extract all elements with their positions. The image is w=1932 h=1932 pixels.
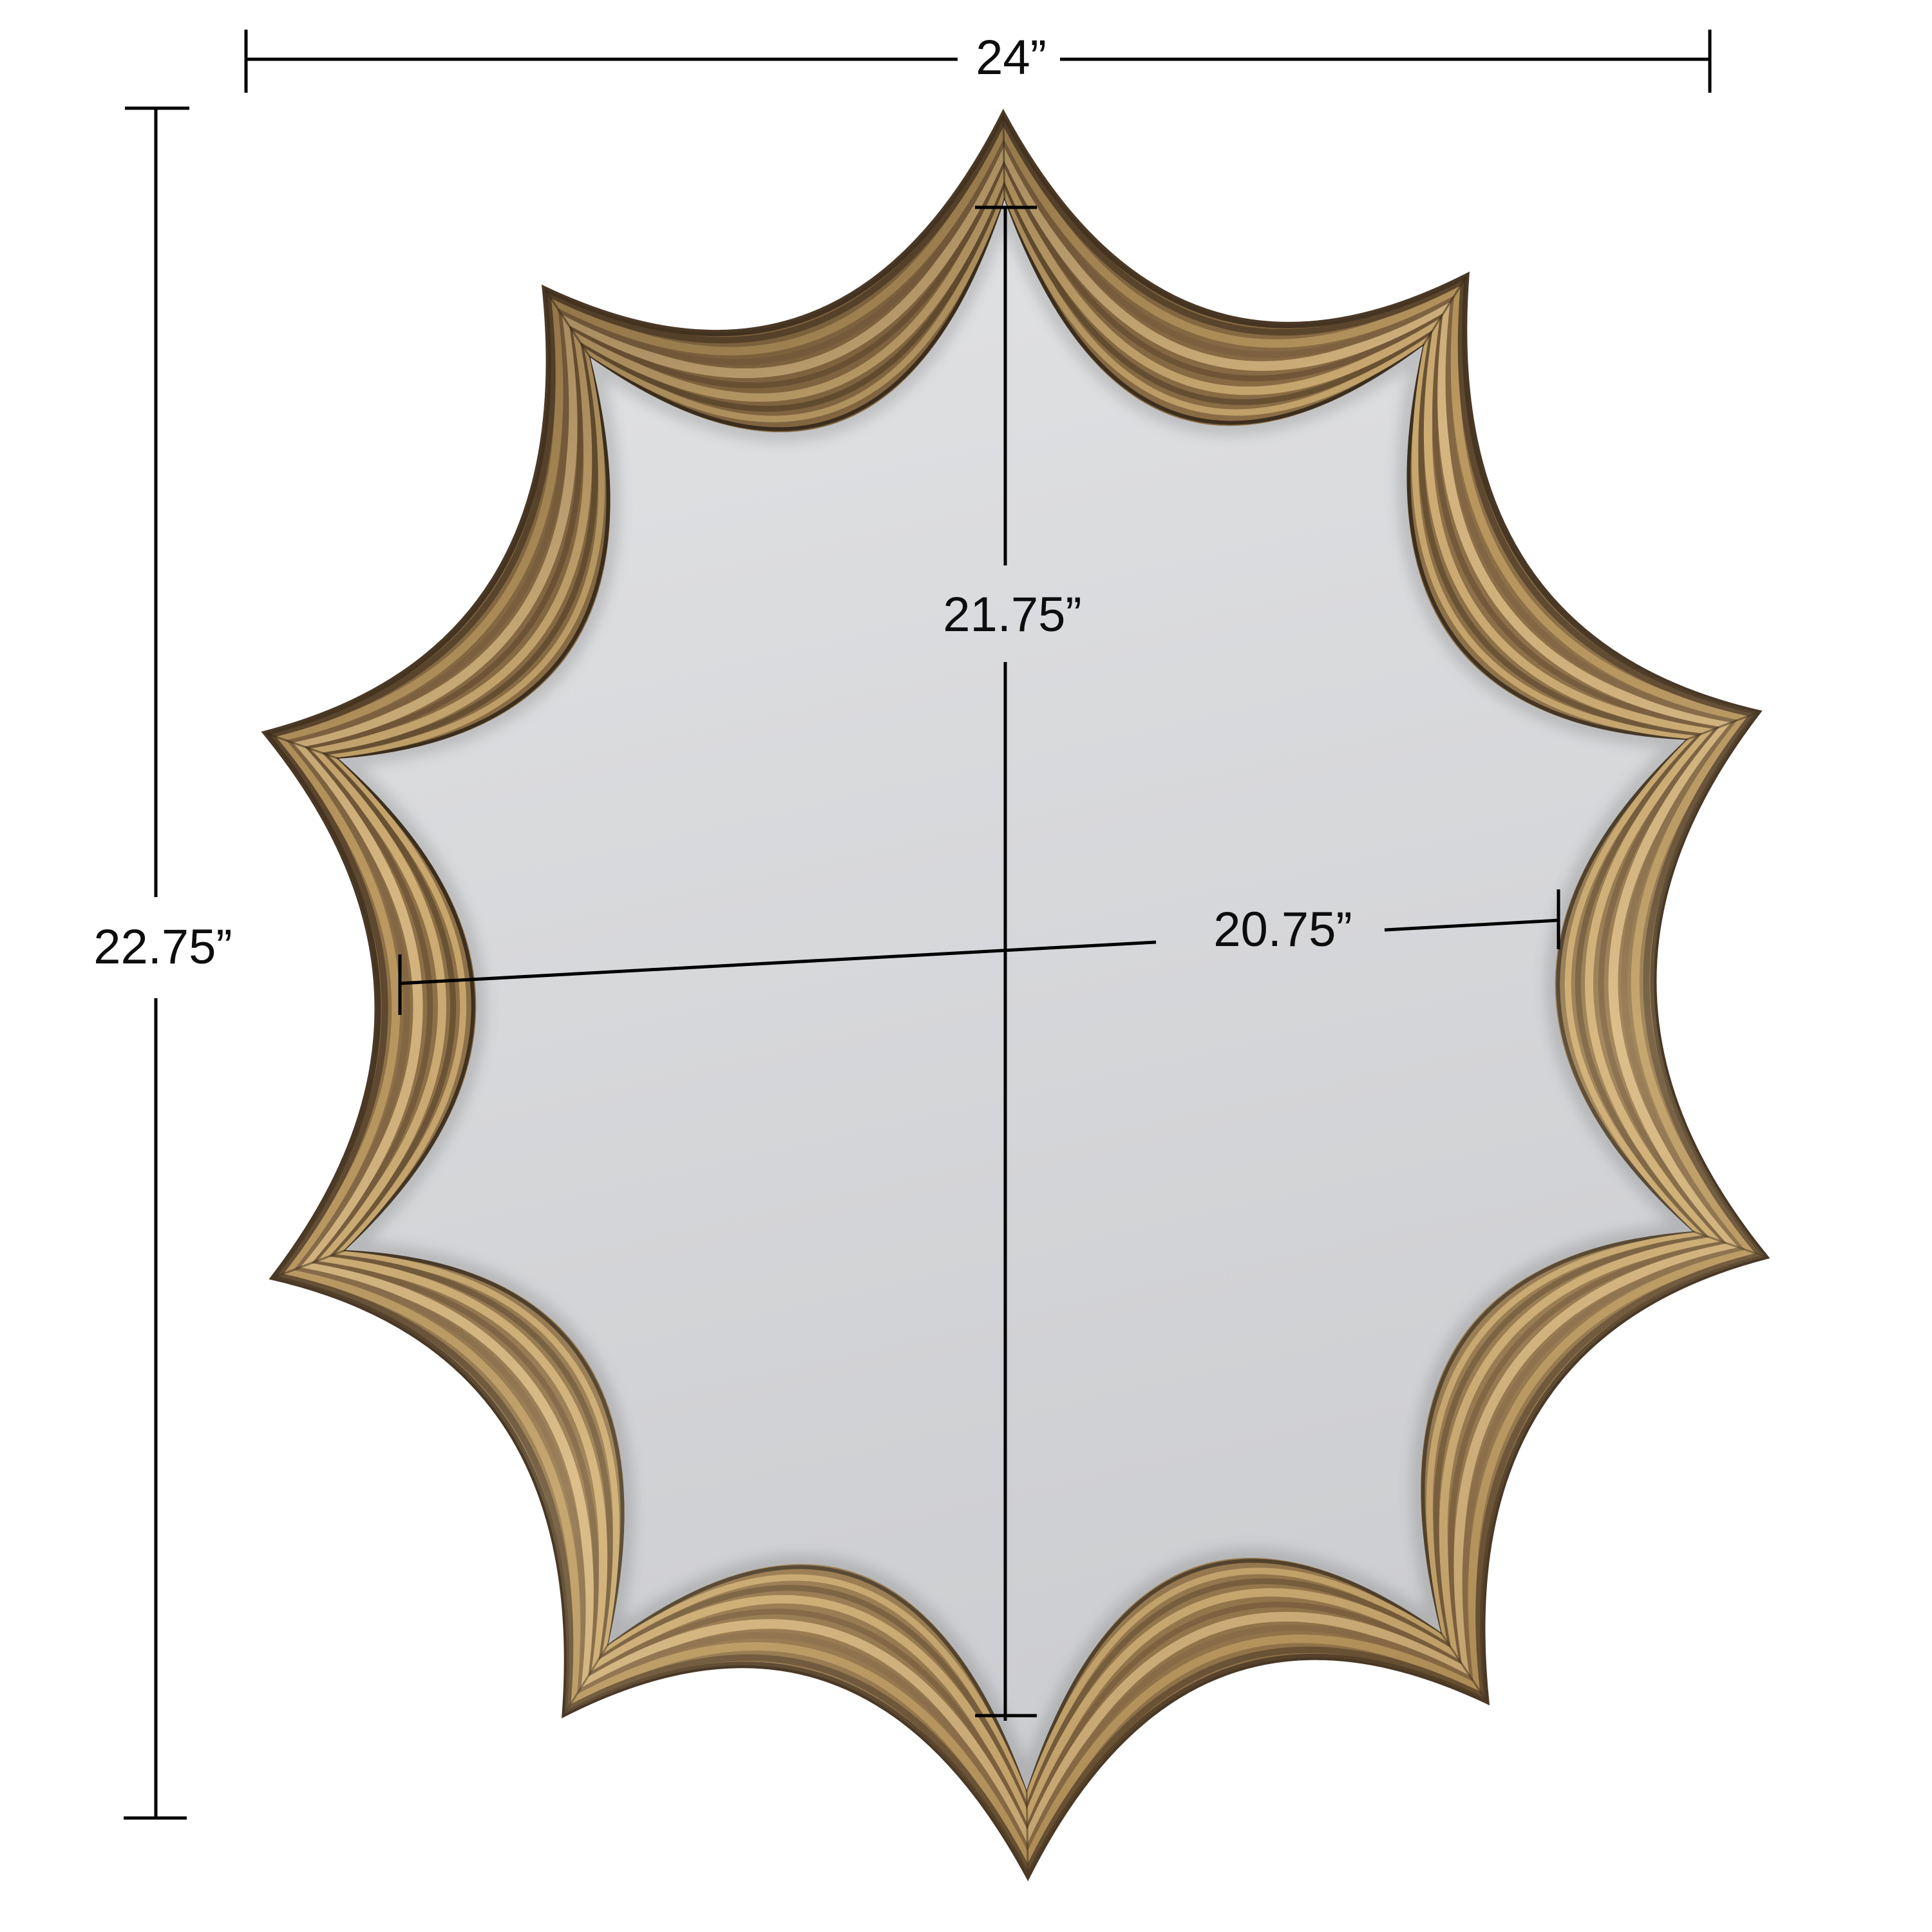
overall-width-label: 24” [976,33,1046,82]
overall-height-label: 22.75” [93,923,232,972]
mirror-glass [331,191,1700,1800]
glass-height-label: 21.75” [943,591,1082,639]
mirror [255,101,1776,1889]
product-dimension-diagram: 24” 22.75” 21.75” 20.75” [0,0,1932,1932]
mirror-diagram-svg [0,0,1932,1932]
glass-width-label: 20.75” [1213,905,1352,954]
